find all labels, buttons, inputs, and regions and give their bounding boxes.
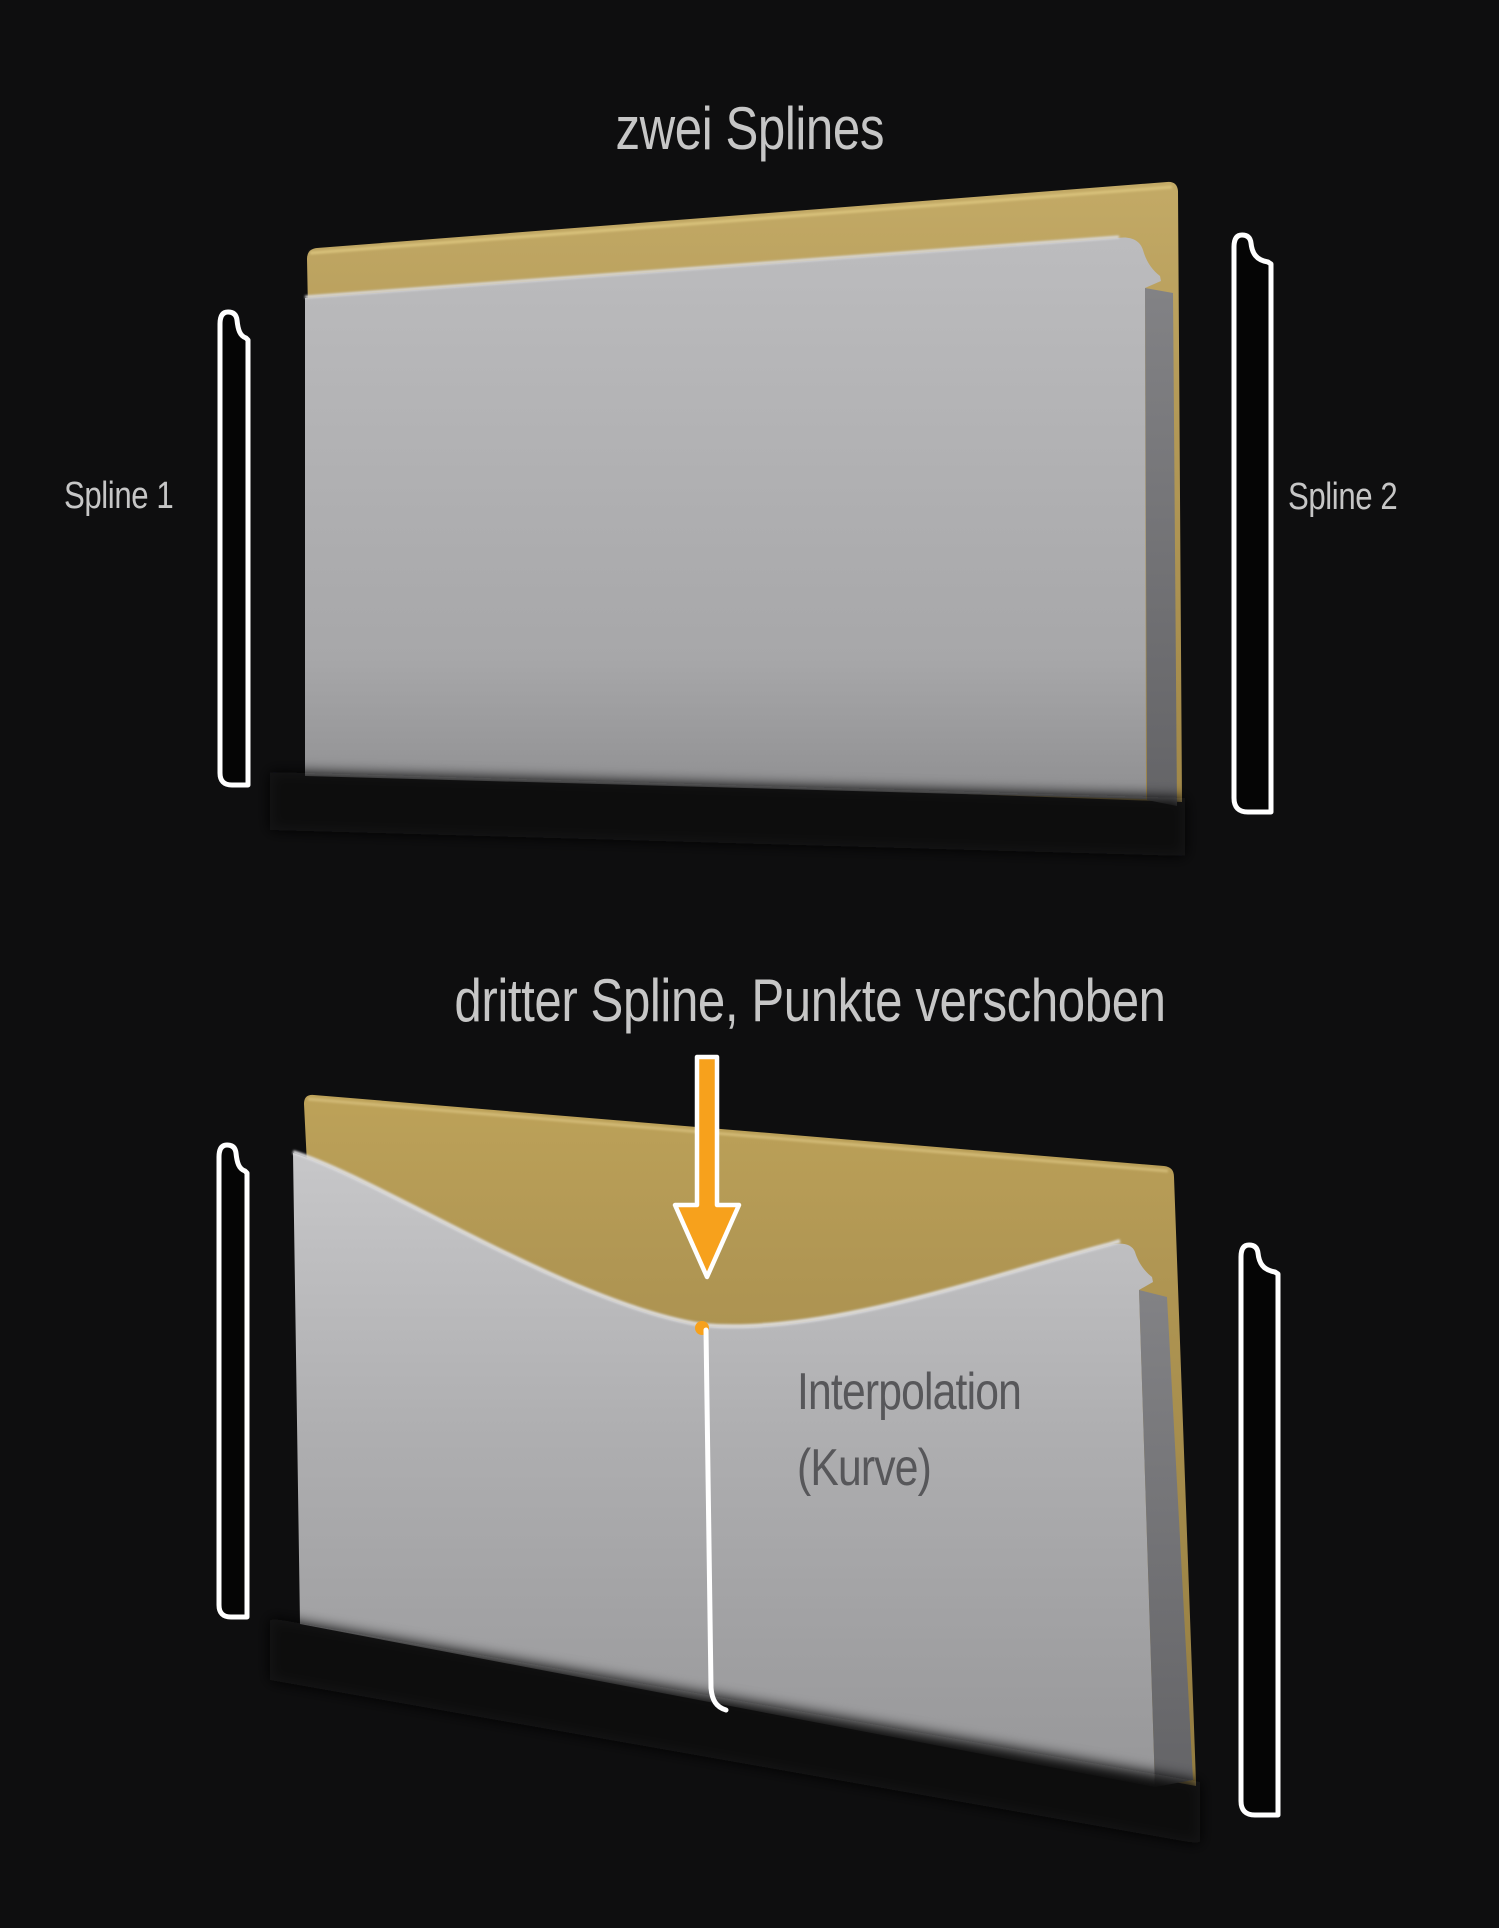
bottom-section-title: dritter Spline, Punkte verschoben bbox=[376, 966, 1243, 1035]
spline1-label: Spline 1 bbox=[64, 475, 197, 518]
interpolation-annotation-line2: (Kurve) bbox=[797, 1438, 960, 1498]
bottom-section-title-text: dritter Spline, Punkte verschoben bbox=[454, 966, 1165, 1035]
top-panel bbox=[220, 182, 1271, 856]
top-section-title-text: zwei Splines bbox=[615, 94, 884, 163]
top-section-title: zwei Splines bbox=[0, 94, 1499, 163]
spline2-profile-shape bbox=[1234, 235, 1271, 812]
spline2-profile-shape bbox=[1241, 1245, 1278, 1815]
spline2-label: Spline 2 bbox=[1288, 476, 1421, 519]
spline1-profile-shape bbox=[219, 1145, 247, 1617]
gray-plate-side-face bbox=[1145, 288, 1177, 806]
bottom-panel bbox=[219, 1057, 1278, 1844]
interpolation-annotation-line1: Interpolation bbox=[797, 1362, 1070, 1422]
figure-canvas: zwei Splines Spline 1 Spline 2 dritter S… bbox=[0, 0, 1499, 1928]
spline1-profile-shape bbox=[220, 312, 248, 785]
gray-front-plate bbox=[305, 238, 1161, 800]
spline-illustration-svg bbox=[0, 0, 1499, 1928]
